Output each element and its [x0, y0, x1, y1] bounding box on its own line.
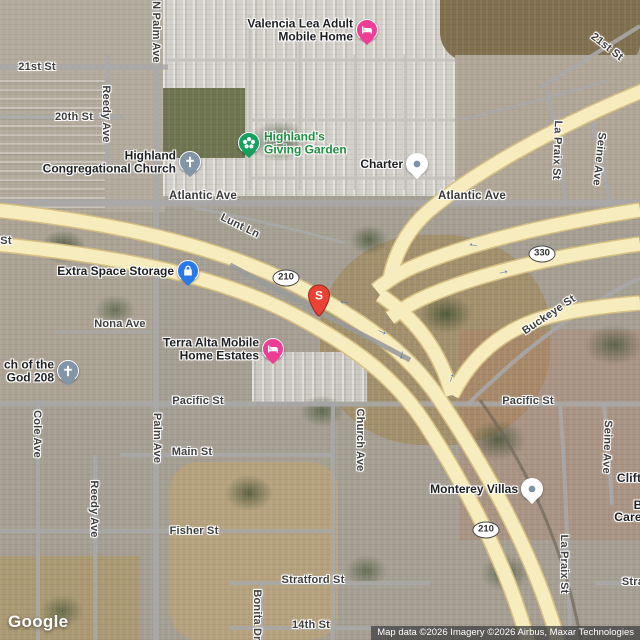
street-label: Buckeye St: [520, 293, 578, 337]
route-shield-210: 210: [473, 522, 500, 539]
street-label: La Praix St: [550, 120, 564, 179]
marker-pin[interactable]: S: [307, 284, 331, 318]
route-shield-330: 330: [529, 246, 556, 263]
poi-label-charter[interactable]: Charter: [360, 158, 403, 171]
street-label: Seine Ave: [600, 420, 614, 474]
poi-pin-highland-congregational-church[interactable]: [179, 151, 201, 173]
street-label: Atlantic Ave: [169, 190, 237, 202]
marker-pin-icon: S: [307, 284, 331, 318]
street-label: Stratford St: [282, 574, 345, 586]
traffic-direction-arrow-icon: →: [495, 261, 511, 278]
traffic-direction-arrow-icon: ↓: [397, 346, 407, 362]
street-label: Atlantic Ave: [438, 190, 506, 202]
street-label: Cole Ave: [31, 410, 43, 458]
street-label: La Praix St: [558, 534, 570, 593]
lodging-bed-icon: [266, 342, 280, 356]
attribution-text: Map data ©2026 Imagery ©2026 Airbus, Max…: [371, 626, 640, 640]
street-label: Fisher St: [170, 525, 219, 537]
garden-flower-icon: [242, 136, 256, 150]
traffic-direction-arrow-icon: ←: [338, 292, 353, 309]
poi-label-highlands-giving-garden[interactable]: Highland'sGiving Garden: [264, 131, 347, 156]
street-label: Pacific St: [502, 395, 554, 407]
traffic-direction-arrow-icon: ↑: [446, 369, 457, 385]
street-label: Lunt Ln: [219, 211, 262, 240]
overlay-layer: 21st St20th StReedy AveN Palm AveAtlanti…: [0, 0, 640, 640]
street-label: Stra: [622, 576, 640, 588]
street-label: Main St: [172, 446, 213, 458]
place-dot-icon: [525, 482, 539, 496]
poi-label-line: Mobile Home: [247, 30, 353, 43]
traffic-direction-arrow-icon: →: [374, 320, 392, 339]
street-label: Pacific St: [172, 395, 224, 407]
poi-pin-monterey-villas[interactable]: [521, 478, 543, 500]
street-label: 20th St: [55, 111, 93, 123]
street-label: 14th St: [292, 619, 330, 631]
poi-label-line: God 208: [4, 371, 54, 384]
poi-label-line: Extra Space Storage: [57, 265, 174, 278]
street-label: Reedy Ave: [100, 85, 112, 142]
poi-label-line: Highland: [43, 150, 176, 163]
street-label: Nona Ave: [94, 318, 146, 330]
poi-label-church-of-the-god-208[interactable]: ch of theGod 208: [4, 359, 54, 384]
poi-label-extra-space-storage[interactable]: Extra Space Storage: [57, 265, 174, 278]
poi-label-line: Monterey Villas: [430, 483, 518, 496]
poi-label-valencia-lea-adult-mobile-home[interactable]: Valencia Lea AdultMobile Home: [247, 18, 353, 43]
poi-label-line: Valencia Lea Adult: [247, 18, 353, 31]
map-canvas[interactable]: 21st St20th StReedy AveN Palm AveAtlanti…: [0, 0, 640, 640]
street-label: N Palm Ave: [150, 1, 162, 63]
route-shield-210: 210: [273, 270, 300, 287]
poi-label-line: Highland's: [264, 131, 347, 144]
street-label: St: [0, 235, 11, 247]
poi-label-terra-alta-mobile-home-estates[interactable]: Terra Alta MobileHome Estates: [163, 337, 259, 362]
poi-pin-terra-alta-mobile-home-estates[interactable]: [262, 338, 284, 360]
street-label: Bonita Dr: [251, 589, 263, 640]
poi-label-line: Terra Alta Mobile: [163, 337, 259, 350]
poi-pin-church-of-the-god-208[interactable]: [57, 360, 79, 382]
poi-pin-valencia-lea-adult-mobile-home[interactable]: [356, 19, 378, 41]
church-cross-icon: [183, 155, 197, 169]
poi-label-line: Giving Garden: [264, 143, 347, 156]
street-label: Clift: [617, 471, 640, 485]
street-label: 21st St: [589, 31, 626, 64]
google-logo[interactable]: Google: [8, 612, 68, 632]
street-label: Church Ave: [354, 409, 366, 472]
poi-pin-charter[interactable]: [406, 153, 428, 175]
poi-pin-highlands-giving-garden[interactable]: [238, 132, 260, 154]
church-cross-icon: [61, 364, 75, 378]
storage-lock-icon: [181, 264, 195, 278]
poi-label-monterey-villas[interactable]: Monterey Villas: [430, 483, 518, 496]
place-dot-icon: [410, 157, 424, 171]
street-label: Seine Ave: [590, 132, 608, 187]
poi-pin-extra-space-storage[interactable]: [177, 260, 199, 282]
lodging-bed-icon: [360, 23, 374, 37]
street-label: 21st St: [18, 61, 55, 73]
poi-label-highland-congregational-church[interactable]: HighlandCongregational Church: [43, 150, 176, 175]
street-label: Reedy Ave: [88, 480, 100, 537]
poi-label-line: Home Estates: [163, 349, 259, 362]
street-label: Palm Ave: [151, 413, 163, 463]
svg-text:S: S: [315, 289, 323, 303]
traffic-direction-arrow-icon: ←: [466, 234, 482, 251]
poi-label-line: ch of the: [4, 359, 54, 372]
poi-label-line: Charter: [360, 158, 403, 171]
poi-label-line: Congregational Church: [43, 162, 176, 175]
street-label: Care: [614, 510, 640, 524]
